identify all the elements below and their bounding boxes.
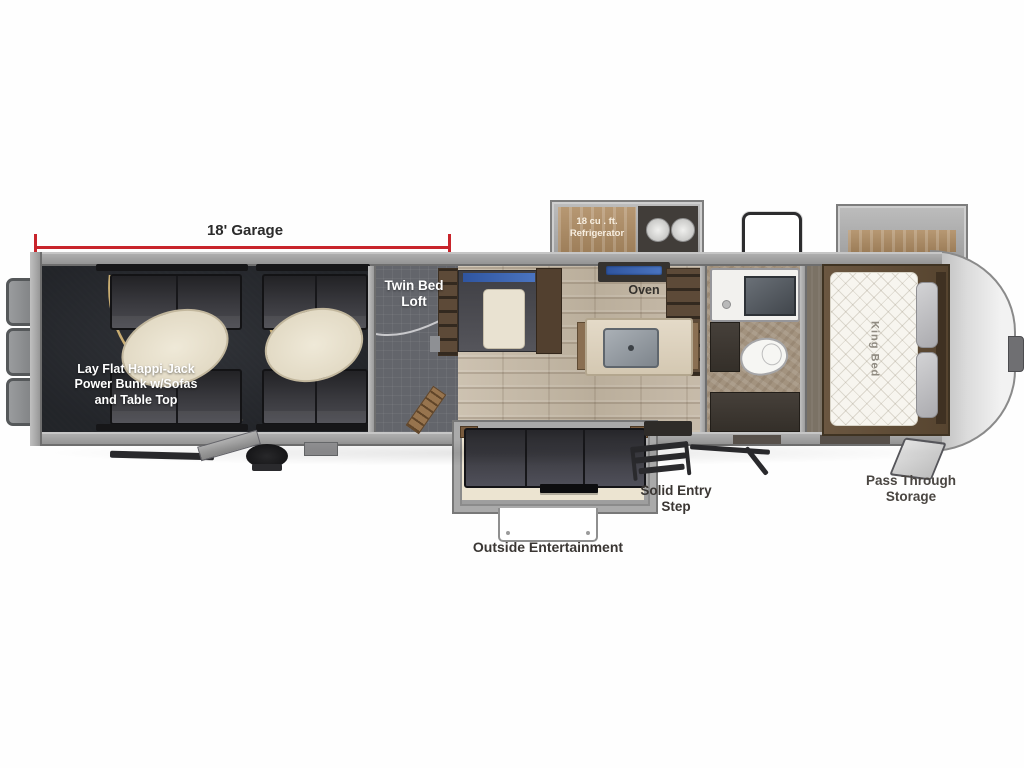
- tv-icon: [540, 484, 598, 493]
- refrigerator-unit: 18 cu . ft. Refrigerator: [558, 207, 636, 255]
- king-bed-label: King Bed: [867, 309, 880, 389]
- entry-door-mat: [644, 421, 692, 436]
- canister-icon: [671, 218, 695, 242]
- garage-dimension-label: 18' Garage: [140, 222, 350, 240]
- bedroom-dresser: [848, 230, 956, 252]
- faucet-icon: [628, 345, 634, 351]
- floorplan-canvas: 18' Garage 18 cu . ft. Refrigerator: [0, 0, 1024, 768]
- bed-pillow-icon: [916, 352, 938, 418]
- king-bed-mattress: King Bed: [830, 272, 918, 426]
- canister-shelf: [638, 206, 698, 256]
- bath-cabinet: [710, 392, 800, 432]
- bath-wall-left: [700, 266, 707, 432]
- hitch-tab: [1008, 336, 1024, 372]
- solid-entry-step-label: Solid Entry Step: [626, 483, 726, 516]
- bunk-rail: [256, 264, 370, 271]
- bath-vanity: [710, 322, 740, 372]
- bunk-rail: [96, 264, 248, 271]
- bedroom-wall-left: [800, 266, 807, 432]
- desk-chair: [483, 289, 525, 349]
- shower-glass: [744, 276, 796, 316]
- pass-through-storage-label: Pass Through Storage: [852, 473, 970, 506]
- shower-drain-icon: [722, 300, 731, 309]
- bunk-rail: [256, 424, 370, 431]
- desk-accent: [463, 273, 535, 282]
- garage-bunk-label: Lay Flat Happi-Jack Power Bunk w/Sofas a…: [48, 362, 224, 408]
- hinge-dot: [586, 531, 590, 535]
- bunk-module: [254, 271, 372, 424]
- sink-icon: [603, 328, 659, 368]
- toilet-seat: [760, 342, 784, 368]
- shower-icon: [710, 268, 800, 322]
- ground-shadow: [40, 440, 960, 466]
- twin-bed-loft-label: Twin Bed Loft: [374, 278, 454, 311]
- entertainment-compartment: [498, 508, 598, 542]
- canister-icon: [646, 218, 670, 242]
- hinge-dot: [506, 531, 510, 535]
- garage-dimension-line: [35, 246, 451, 249]
- bunk-rail: [96, 424, 248, 431]
- refrigerator-label: 18 cu . ft. Refrigerator: [558, 216, 636, 239]
- kitchen-island: [585, 318, 693, 376]
- loft-pillar: [430, 336, 440, 352]
- range-unit: [598, 262, 670, 282]
- hull-rear-wall: [30, 252, 42, 446]
- outside-entertainment-label: Outside Entertainment: [440, 539, 656, 556]
- cooktop-icon: [606, 266, 662, 275]
- tall-cabinet: [536, 268, 562, 354]
- media-desk: [458, 270, 540, 352]
- bed-pillow-icon: [916, 282, 938, 348]
